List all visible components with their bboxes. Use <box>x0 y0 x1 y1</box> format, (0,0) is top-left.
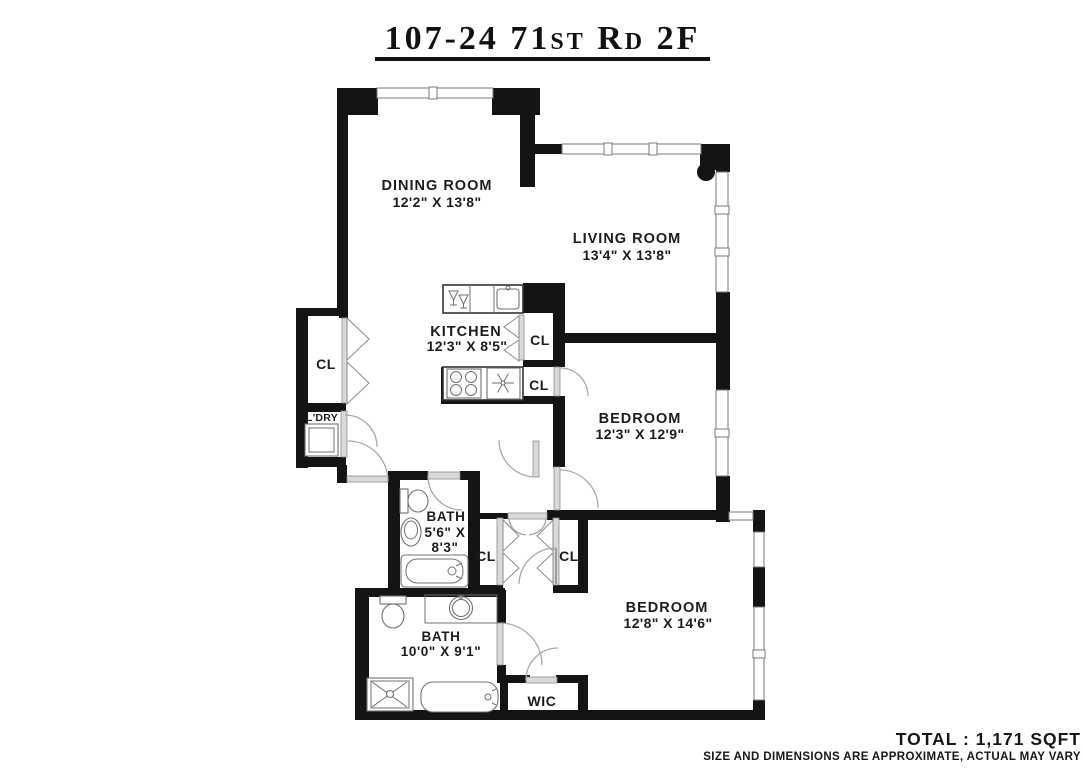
wall <box>497 590 506 623</box>
toilet-icon <box>380 596 406 628</box>
floorplan-page: 107-24 71st Rd 2F <box>0 0 1085 768</box>
toilet-icon <box>400 489 428 513</box>
total-sqft-label: TOTAL : 1,171 SQFT <box>703 729 1081 750</box>
kitchen-counter-bottom <box>443 367 523 400</box>
door-arc <box>348 441 388 481</box>
wall <box>497 675 530 683</box>
room-dims-kitchen: 12'3" X 8'5" <box>427 338 508 354</box>
closet-label-hall-left: CL <box>476 548 496 564</box>
bathtub-icon <box>421 682 498 712</box>
wall <box>480 513 508 519</box>
room-label-living: LIVING ROOM <box>573 231 681 247</box>
shower-icon <box>367 678 413 711</box>
wall <box>716 144 730 172</box>
wall <box>547 510 716 520</box>
closet-label-hall-right: CL <box>559 548 579 564</box>
bathtub-icon <box>401 555 468 587</box>
floorplan-drawing: DINING ROOM 12'2" X 13'8" LIVING ROOM 13… <box>0 0 1085 768</box>
door-leaf <box>533 441 539 477</box>
door-arc <box>345 415 377 447</box>
door-leaf <box>519 315 524 360</box>
door-leaf <box>508 513 547 519</box>
window <box>562 144 701 154</box>
wall <box>535 144 563 154</box>
kitchen-counter-top <box>443 285 523 313</box>
window-divider <box>753 650 765 658</box>
wall <box>753 567 765 607</box>
stove-icon <box>447 369 481 398</box>
wall <box>468 471 480 592</box>
kitchen-sink-icon <box>497 286 519 309</box>
closet-label-entry: CL <box>316 356 336 372</box>
window <box>754 532 764 567</box>
wall <box>553 396 565 467</box>
closet-label-kitchen-upper: CL <box>530 332 550 348</box>
wall <box>553 283 565 367</box>
door-arc <box>499 440 536 477</box>
washer-icon <box>305 424 338 456</box>
window-divider <box>715 248 729 256</box>
wall <box>578 513 588 593</box>
wall <box>578 675 588 720</box>
door-leaf <box>497 518 503 585</box>
door-leaf <box>554 367 560 396</box>
wall <box>339 308 348 318</box>
room-dims-dining: 12'2" X 13'8" <box>393 194 482 210</box>
bifold-door <box>347 362 369 404</box>
room-label-wic: WIC <box>527 693 556 709</box>
room-dims-living: 13'4" X 13'8" <box>583 247 672 263</box>
wall <box>523 283 555 313</box>
wall <box>520 88 535 187</box>
window-divider <box>715 429 729 437</box>
bifold-door <box>347 318 369 360</box>
room-dims-bath1-line1: 5'6" X <box>425 525 466 540</box>
door-leaf <box>526 677 557 683</box>
window-divider <box>649 143 657 155</box>
door-leaf <box>497 623 503 665</box>
wall <box>296 308 346 316</box>
door-leaf <box>341 411 347 457</box>
wall <box>523 360 555 367</box>
door-arc <box>500 623 542 665</box>
door-leaf <box>428 472 460 479</box>
wall <box>753 510 765 532</box>
wall <box>355 710 765 720</box>
door-leaf <box>347 476 388 482</box>
window <box>716 172 728 292</box>
bifold-door <box>537 553 553 583</box>
wall <box>716 476 730 522</box>
window-divider <box>604 143 612 155</box>
door-leaf <box>342 318 347 403</box>
room-dims-bath2: 10'0" X 9'1" <box>401 644 481 659</box>
room-label-laundry: L'DRY <box>306 412 338 424</box>
room-label-bath2: BATH <box>422 629 461 644</box>
closet-label-kitchen-lower: CL <box>529 377 549 393</box>
wall <box>298 403 346 412</box>
wall <box>337 465 347 483</box>
room-label-bedroom1: BEDROOM <box>599 411 682 427</box>
sink-icon <box>401 518 421 546</box>
room-dims-bedroom1: 12'3" X 12'9" <box>596 426 685 442</box>
window-divider <box>429 87 437 99</box>
room-label-bath1: BATH <box>427 509 466 524</box>
room-dims-bedroom2: 12'8" X 14'6" <box>624 615 713 631</box>
disclaimer-label: SIZE AND DIMENSIONS ARE APPROXIMATE, ACT… <box>703 751 1081 763</box>
door-leaf <box>554 467 560 510</box>
wall <box>355 588 505 597</box>
column-dot <box>697 163 715 181</box>
room-label-bedroom2: BEDROOM <box>626 600 709 616</box>
footer: TOTAL : 1,171 SQFT SIZE AND DIMENSIONS A… <box>703 729 1081 763</box>
window-divider <box>715 206 729 214</box>
door-arc <box>428 476 462 510</box>
wall <box>500 683 508 720</box>
wall <box>388 471 400 590</box>
bifold-door <box>504 316 519 338</box>
wall <box>553 585 588 593</box>
wall <box>388 471 428 480</box>
window <box>729 512 753 520</box>
room-label-dining: DINING ROOM <box>382 178 493 194</box>
door-arc <box>560 470 598 508</box>
wall <box>337 88 348 313</box>
door-arc <box>560 368 588 396</box>
bifold-door <box>503 553 519 583</box>
wall <box>553 333 720 343</box>
vent-fan-icon <box>487 368 520 399</box>
vanity-sink-icon <box>425 595 497 623</box>
room-dims-bath1-line2: 8'3" <box>431 540 458 555</box>
